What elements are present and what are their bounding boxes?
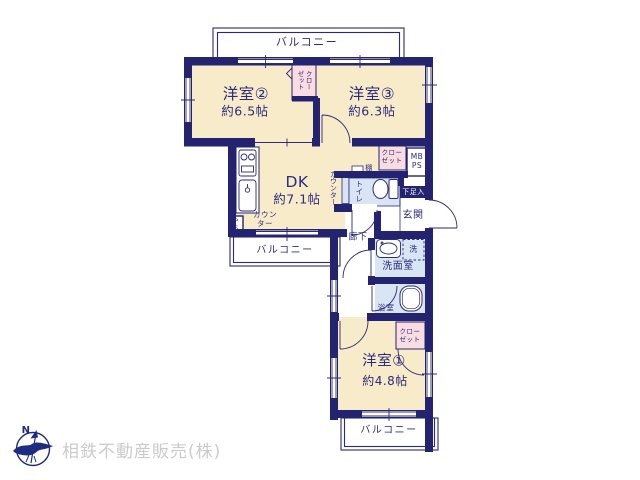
room2-name: 洋室② xyxy=(223,85,269,103)
shelf-label: 棚 xyxy=(365,164,373,172)
counter-side-label: カウンター xyxy=(329,171,338,206)
room3-name: 洋室③ xyxy=(349,85,395,103)
compass-icon xyxy=(13,430,53,466)
room1-name: 洋室① xyxy=(362,353,406,370)
balcony-bottom-label: バルコニー xyxy=(360,425,417,437)
entrance-door-arc xyxy=(429,200,457,228)
toilet-door-arc xyxy=(352,210,377,235)
washroom-door-arc xyxy=(343,250,371,278)
kitchen-counter xyxy=(236,147,259,213)
senmenshitsu-label: 洗面室 xyxy=(382,261,414,273)
company-name: 相鉄不動産販売(株) xyxy=(62,442,221,462)
genkan-label: 玄関 xyxy=(403,210,424,222)
compass-n-label: N xyxy=(22,425,31,437)
vanity-sink-icon xyxy=(377,240,401,258)
room2-size: 約6.5帖 xyxy=(221,105,268,120)
mbps-label: MB PS xyxy=(411,153,424,171)
toilet-icon xyxy=(373,180,398,199)
rouka-label: 廊下 xyxy=(348,233,367,244)
dk-size: 約7.1帖 xyxy=(273,193,320,208)
dk-name: DK xyxy=(285,173,308,191)
ps-label: PS xyxy=(232,218,240,232)
closet-mid-label: クロー ゼット xyxy=(382,149,403,164)
toilet-label: トイレ xyxy=(354,180,363,203)
counter-dk-label: カウン ター xyxy=(253,211,277,229)
bathtub-icon xyxy=(400,286,422,311)
closet1-label: クロー ゼット xyxy=(400,328,421,343)
counter-strip xyxy=(342,178,349,204)
room3-size: 約6.3帖 xyxy=(348,105,395,120)
yokushitsu-label: 浴室 xyxy=(378,303,395,312)
floorplan: バルコニー 洋室② 約6.5帖 クロー ゼット 洋室③ 約6.3帖 クロー ゼッ… xyxy=(0,0,640,480)
balcony-mid-label: バルコニー xyxy=(256,245,313,257)
washer-label: 洗 xyxy=(409,244,418,253)
balcony-top-label: バルコニー xyxy=(276,37,338,50)
room1-size: 約4.8帖 xyxy=(362,374,408,388)
floorplan-svg xyxy=(0,0,640,480)
closet2-label: クロー ゼット xyxy=(296,70,312,90)
getabako-label: 下足入 xyxy=(402,188,425,196)
